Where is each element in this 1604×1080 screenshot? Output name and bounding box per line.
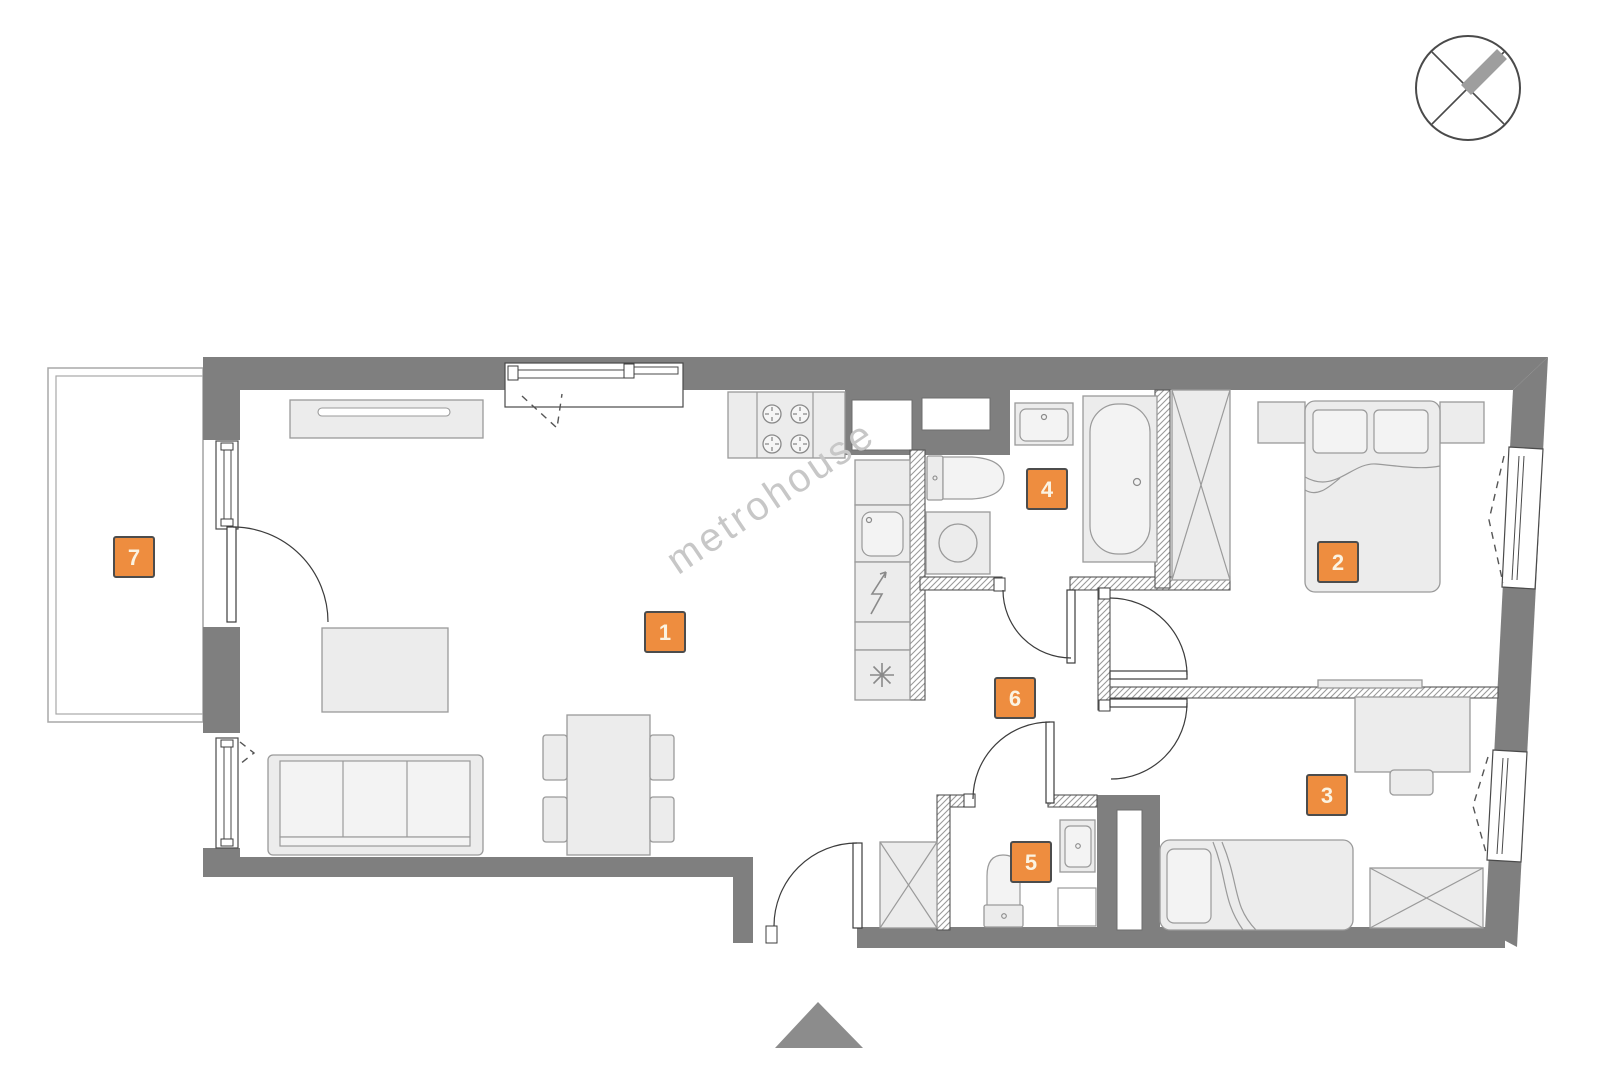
sideboard-handle <box>318 408 450 416</box>
entrance-hall <box>880 842 937 928</box>
kitchen-cabinet-2 <box>855 622 910 650</box>
room-number: 2 <box>1332 550 1344 575</box>
bedroom2-door <box>1099 588 1187 679</box>
room-number: 5 <box>1025 850 1037 875</box>
room-badge-6: 6 <box>995 678 1035 718</box>
balcony-window <box>216 441 238 529</box>
hatched-wall-wc-west <box>937 795 950 930</box>
pillow <box>1167 849 1211 923</box>
room-number: 1 <box>659 620 671 645</box>
bathroom-door <box>994 578 1075 663</box>
wc-door <box>964 722 1054 807</box>
wc-toilet-tank <box>984 905 1023 927</box>
left-wall-middle <box>203 627 240 733</box>
living-room <box>268 400 674 855</box>
bedroom3-east-window <box>1473 750 1527 862</box>
top-wall <box>203 357 1548 390</box>
fridge-unit <box>855 562 910 622</box>
chair <box>650 735 674 780</box>
left-wall-upper <box>203 357 240 440</box>
nightstand <box>1440 402 1484 443</box>
wc-cabinet <box>1058 888 1096 926</box>
sofa-cushions <box>280 761 470 837</box>
hatched-wall-kitchen <box>910 450 925 700</box>
dining-table <box>567 715 650 855</box>
toilet-tank <box>927 456 943 500</box>
tilt-indicator <box>1473 757 1488 856</box>
room-number: 4 <box>1041 477 1054 502</box>
kitchen-cabinet <box>855 460 910 505</box>
pillow <box>1374 410 1428 453</box>
freezer-snowflake-icon <box>870 663 894 687</box>
compass-north-wedge <box>1466 54 1502 90</box>
room-badge-1: 1 <box>645 612 685 652</box>
room-badge-7: 7 <box>114 537 154 577</box>
pillow <box>1313 410 1367 453</box>
room-badge-4: 4 <box>1027 469 1067 509</box>
room-badge-5: 5 <box>1011 842 1051 882</box>
living-bottom-wall <box>203 857 753 877</box>
bath-sink <box>1020 409 1068 441</box>
balcony-door <box>227 527 328 622</box>
coffee-table <box>322 628 448 712</box>
room-badge-2: 2 <box>1318 542 1358 582</box>
chair <box>543 735 567 780</box>
north-arrow-icon <box>775 1002 863 1048</box>
hatched-wall-bedroom-divider <box>1108 687 1498 698</box>
ventilation-shaft-2 <box>922 398 990 430</box>
hatched-wall-bath-south-left <box>920 577 1002 590</box>
radiator-shelf <box>1318 680 1422 688</box>
toilet-bowl <box>943 457 1004 499</box>
hatched-wall-door-column <box>1098 588 1110 710</box>
bathtub-inner <box>1090 404 1150 554</box>
room-number: 7 <box>128 545 140 570</box>
bedroom-2 <box>1172 390 1484 688</box>
entrance-door <box>766 843 862 943</box>
nightstand <box>1258 402 1305 443</box>
tilt-indicator <box>1489 456 1504 583</box>
chair <box>543 797 567 842</box>
compass-icon <box>1416 36 1520 140</box>
desk-chair <box>1390 770 1433 795</box>
room-number: 6 <box>1009 686 1021 711</box>
floor-plan-canvas: metrohouse 1 2 3 4 5 6 7 <box>0 0 1604 1080</box>
hatched-wall-hall-south-right <box>1048 795 1097 807</box>
washing-machine <box>926 512 990 574</box>
sideboard <box>290 400 483 438</box>
floor-plan-svg: metrohouse 1 2 3 4 5 6 7 <box>0 0 1604 1080</box>
sofa-front <box>280 837 470 846</box>
wc-sink <box>1065 826 1091 867</box>
bedroom3-door <box>1099 699 1187 779</box>
kitchen-sink <box>862 512 903 556</box>
room-badge-3: 3 <box>1307 775 1347 815</box>
chair <box>650 797 674 842</box>
desk <box>1355 697 1470 772</box>
bedroom2-east-window <box>1489 447 1543 589</box>
tilt-indicator <box>240 742 254 764</box>
bottom-step-wall <box>733 877 753 943</box>
room-number: 3 <box>1321 783 1333 808</box>
ventilation-shaft-3 <box>1117 810 1142 930</box>
living-west-window <box>216 738 254 848</box>
top-window <box>505 363 683 428</box>
